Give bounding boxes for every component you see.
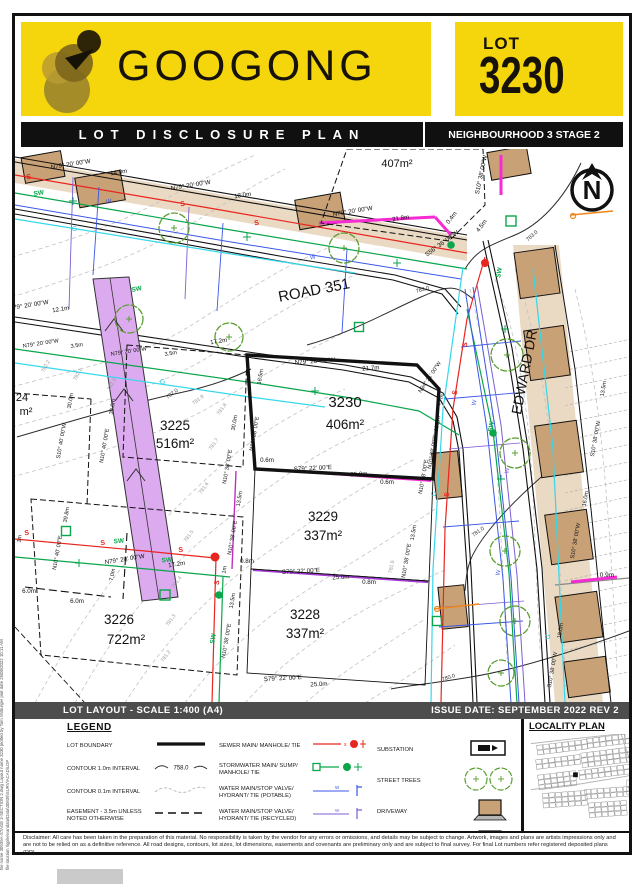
map-label: S: [100, 540, 106, 547]
map-label: 1m: [221, 565, 228, 574]
locality-block: [581, 746, 629, 767]
driveway-swatch: [461, 798, 517, 827]
map-shape: [514, 247, 560, 298]
plan-sheet: GOOGONG LOT 3230 LOT DISCLOSURE PLAN NEI…: [12, 13, 632, 855]
map-label: N79° 20' 00"W: [22, 338, 60, 350]
map-label: 13.5m: [236, 490, 245, 507]
map-shape: [217, 223, 223, 311]
legend-item: DRIVEWAY: [377, 798, 517, 827]
map-label: 781.3: [165, 613, 177, 627]
map-shape: [477, 285, 525, 702]
page-title: LOT DISCLOSURE PLAN: [21, 122, 423, 147]
map-label: 30.0m: [231, 414, 240, 431]
map-label: 3226: [104, 612, 134, 627]
map-label: 25.0m: [332, 574, 350, 582]
map-label: 3.5m: [70, 342, 84, 350]
map-label: 12.1m: [52, 305, 70, 315]
googong-banner: GOOGONG: [21, 22, 431, 116]
map-label: SW: [33, 189, 45, 198]
legend-item: STREET TREES: [377, 767, 517, 796]
map-label: 781.0: [471, 526, 486, 539]
map-label: SW: [131, 285, 143, 294]
map-shape: [449, 443, 520, 449]
map-shape: [564, 656, 611, 697]
map-shape: [15, 363, 325, 407]
map-label: 1m: [16, 534, 23, 543]
map-label: 7.0m: [109, 568, 117, 582]
legend-item-label: WATER MAIN/STOP VALVE/ HYDRANT/ TIE (REC…: [219, 809, 311, 822]
map-label: 13.5m: [229, 592, 238, 609]
map-label: 337m²: [304, 528, 343, 543]
map-label: 782.0: [165, 388, 179, 401]
map-label: 4.5m: [475, 218, 489, 233]
map-shape: [506, 216, 516, 226]
map-label: 25.0m: [350, 471, 368, 479]
map-shape: [62, 527, 71, 536]
map-label: 406m²: [326, 417, 365, 432]
lot-number: 3230: [479, 46, 565, 106]
legend-item-label: WATER MAIN/STOP VALVE/ HYDRANT/ TIE (POT…: [219, 786, 311, 799]
street-trees-swatch: [461, 767, 517, 796]
map-label: 13.5m: [410, 524, 419, 541]
legend-item: CONTOUR 1.0m INTERVAL758.0: [67, 759, 209, 780]
map-label: N10° 40' 00"E: [52, 535, 64, 571]
locality-map-svg: N: [529, 734, 629, 828]
map-shape: [565, 392, 629, 406]
map-label: 3228: [290, 607, 320, 622]
map-shape: [211, 553, 220, 562]
page-artifact: [57, 869, 123, 884]
map-label: 0.4m: [445, 210, 459, 225]
map-label: 781.7: [208, 437, 220, 451]
locality-title: LOCALITY PLAN: [529, 721, 629, 732]
map-label: 3230: [328, 394, 361, 411]
map-shape: [247, 569, 429, 685]
map-label: m²: [20, 406, 33, 418]
svg-text:W: W: [335, 808, 340, 813]
map-label: N79° 20' 00"W: [295, 357, 336, 367]
map-label: 17.2m: [210, 337, 228, 347]
map-label: 21.7m: [362, 364, 380, 372]
svg-text:758.0: 758.0: [173, 766, 189, 772]
map-label: S10° 38' 00"W: [590, 420, 602, 457]
map-label: W: [505, 467, 512, 474]
map-label: 25.0m: [310, 681, 328, 689]
map-label: SW: [113, 537, 125, 545]
stormwater-swatch: [311, 759, 367, 780]
map-label: N10° 38' 00"E: [227, 520, 239, 556]
map-label: 781.5: [183, 529, 195, 543]
map-label: S: [462, 342, 470, 348]
map-shape: [212, 558, 216, 702]
map-label: W: [472, 399, 479, 406]
legend-item-label: CONTOUR 1.0m INTERVAL: [67, 766, 153, 772]
site-plan-map: NN79° 20' 00"W14.0mN79° 20' 00"W18.0m407…: [15, 149, 629, 702]
svg-text:s: s: [344, 742, 347, 748]
map-label: 781.8: [216, 402, 228, 416]
map-label: 3229: [308, 509, 338, 524]
legend-column: LOT BOUNDARYCONTOUR 1.0m INTERVAL758.0CO…: [67, 736, 209, 831]
map-shape: [25, 587, 111, 597]
map-label: 407m²: [381, 158, 413, 170]
locality-plan: LOCALITY PLAN N: [521, 719, 629, 831]
map-label: 0.8m: [240, 558, 254, 565]
map-label: 6.0m: [70, 598, 84, 605]
map-label: SW: [161, 556, 173, 564]
map-label: 30.0m: [67, 392, 76, 409]
svg-text:W: W: [335, 785, 340, 790]
locality-block: [588, 800, 627, 817]
map-shape: [69, 177, 73, 309]
map-shape: [565, 374, 629, 388]
map-label: W: [496, 569, 503, 576]
site-plan-svg: NN79° 20' 00"W14.0mN79° 20' 00"W18.0m407…: [15, 149, 629, 702]
locality-block: [542, 790, 587, 808]
legend-item-label: SEWER MAIN/ MANHOLE/ TIE: [219, 743, 311, 749]
disclaimer: Disclaimer: All care has been taken in t…: [15, 831, 629, 852]
map-label: N10° 40' 00"E: [99, 428, 111, 464]
legend: LEGEND LOT BOUNDARYCONTOUR 1.0m INTERVAL…: [15, 719, 521, 831]
legend-item-label: DRIVEWAY: [377, 809, 461, 815]
title-bar: LOT DISCLOSURE PLAN NEIGHBOURHOOD 3 STAG…: [21, 122, 623, 147]
map-label: 3225: [160, 418, 190, 433]
map-shape: [487, 149, 531, 180]
lot-number-box: LOT 3230: [455, 22, 623, 116]
plot-file-info-line1: file name 30939A-STAGE 2-SECTION 2.dwg L…: [0, 420, 5, 870]
map-label: 516m²: [156, 436, 195, 451]
map-shape: [15, 159, 467, 261]
locality-block: [536, 754, 581, 769]
map-label: SW: [495, 266, 504, 278]
map-shape: [307, 288, 473, 345]
lot-boundary-swatch: [153, 736, 209, 757]
legend-title: LEGEND: [67, 722, 517, 733]
scale-bar: LOT LAYOUT - SCALE 1:400 (A4) ISSUE DATE…: [15, 702, 629, 719]
legend-column: SUBSTATIONSTREET TREESDRIVEWAYDRIVEWAY P…: [377, 736, 517, 831]
issue-date: ISSUE DATE: SEPTEMBER 2022 REV 2: [431, 705, 619, 716]
map-label: 783.0: [525, 230, 539, 243]
map-label: S10° 38' 00"W: [474, 154, 489, 195]
legend-item-label: EASEMENT - 3.5m UNLESS NOTED OTHERWISE: [67, 809, 153, 822]
legend-item: STORMWATER MAIN/ SUMP/ MANHOLE/ TIE: [219, 759, 367, 780]
street-tree-icon: [500, 438, 530, 468]
map-label: S: [178, 547, 184, 554]
locality-marker: [573, 772, 578, 777]
map-shape: [15, 627, 85, 702]
legend-item: SUBSTATION: [377, 736, 517, 765]
map-label: 0.6m: [380, 479, 394, 486]
map-shape: [565, 339, 629, 353]
water-potable-swatch: W: [311, 782, 367, 803]
map-label: 780.0: [441, 673, 456, 683]
map-shape: [481, 259, 489, 267]
map-label: 16.5m: [257, 368, 266, 385]
map-label: 39.8m: [63, 506, 72, 523]
map-label: 782.2: [40, 359, 51, 373]
legend-item: LOT BOUNDARY: [67, 736, 209, 757]
map-label: 0.9m: [600, 572, 614, 579]
map-label: 0.6m: [260, 457, 274, 464]
map-label: N10° 38' 00"E: [222, 449, 234, 485]
map-shape: [215, 591, 223, 599]
map-label: 781.6: [198, 481, 210, 495]
legend-item: WATER MAIN/STOP VALVE/ HYDRANT/ TIE (POT…: [219, 782, 367, 803]
map-shape: [15, 245, 335, 389]
legend-item-label: STORMWATER MAIN/ SUMP/ MANHOLE/ TIE: [219, 763, 311, 776]
map-label: 781.9: [191, 394, 205, 407]
brand-name: GOOGONG: [117, 42, 377, 91]
map-label: S: [452, 390, 460, 396]
map-label: S: [214, 580, 222, 586]
map-label: 24: [16, 392, 28, 404]
svg-text:N: N: [583, 175, 602, 205]
map-label: N79° 20' 00"W: [15, 299, 49, 312]
map-label: 13.5m: [600, 380, 609, 397]
map-shape: [15, 175, 467, 253]
map-label: S10° 40' 00"W: [56, 422, 68, 459]
neighbourhood-stage: NEIGHBOURHOOD 3 STAGE 2: [423, 122, 623, 147]
map-label: 6.0m: [22, 588, 36, 595]
locality-block: [586, 734, 629, 748]
sewer-swatch: s: [311, 736, 367, 757]
map-shape: [535, 420, 584, 477]
substation-swatch: [461, 736, 517, 765]
map-shape: [87, 399, 91, 505]
legend-item-label: SUBSTATION: [377, 747, 461, 753]
map-shape: [545, 509, 594, 564]
map-shape: [433, 617, 442, 626]
map-label: 21.8m: [392, 214, 410, 224]
contour-major-swatch: 758.0: [153, 759, 209, 780]
map-label: 782.1: [72, 367, 83, 381]
map-label: 10.2m: [434, 415, 443, 432]
street-tree-icon: [159, 213, 189, 243]
map-label: 18.0m: [234, 191, 252, 201]
map-label: 0.8m: [362, 579, 376, 586]
map-label: G: [72, 226, 78, 234]
legend-item: SEWER MAIN/ MANHOLE/ TIEs: [219, 736, 367, 757]
easement-swatch: [153, 805, 209, 826]
legend-item-label: STREET TREES: [377, 778, 461, 784]
legend-item: EASEMENT - 3.5m UNLESS NOTED OTHERWISE: [67, 805, 209, 826]
plot-file-info: file name 30939A-STAGE 2-SECTION 2.dwg L…: [0, 420, 10, 870]
bottom-panel: LEGEND LOT BOUNDARYCONTOUR 1.0m INTERVAL…: [15, 719, 629, 831]
plot-file-info-line2: file location \\gplre\vandata\Data\30939…: [6, 420, 11, 870]
water-recycled-swatch: W: [311, 805, 367, 826]
legend-item: CONTOUR 0.1m INTERVAL: [67, 782, 209, 803]
locality-block: [585, 786, 629, 799]
map-label: 781.6: [388, 560, 396, 574]
legend-column: SEWER MAIN/ MANHOLE/ TIEsSTORMWATER MAIN…: [219, 736, 367, 831]
map-label: 337m²: [286, 626, 325, 641]
map-label: ROAD 351: [277, 275, 351, 306]
map-label: SW: [209, 632, 218, 644]
contour-minor-swatch: [153, 782, 209, 803]
map-label: 722m²: [107, 632, 146, 647]
map-label: S: [24, 530, 30, 537]
map-label: 16.0m: [582, 490, 591, 507]
legend-item-label: LOT BOUNDARY: [67, 743, 153, 749]
scale-bar-left: LOT LAYOUT - SCALE 1:400 (A4): [63, 705, 223, 716]
map-shape: [15, 209, 461, 307]
map-label: S79° 22' 00"E: [264, 674, 303, 683]
googong-logo-icon: [37, 28, 109, 121]
map-label: 3.5m: [164, 350, 178, 358]
map-shape: [15, 322, 473, 702]
legend-item: WATER MAIN/STOP VALVE/ HYDRANT/ TIE (REC…: [219, 805, 367, 826]
map-label: N10° 38' 00"E: [221, 623, 233, 659]
map-label: G: [160, 379, 166, 387]
map-label: N10° 38' 00"E: [401, 543, 413, 579]
legend-item-label: CONTOUR 0.1m INTERVAL: [67, 789, 153, 795]
